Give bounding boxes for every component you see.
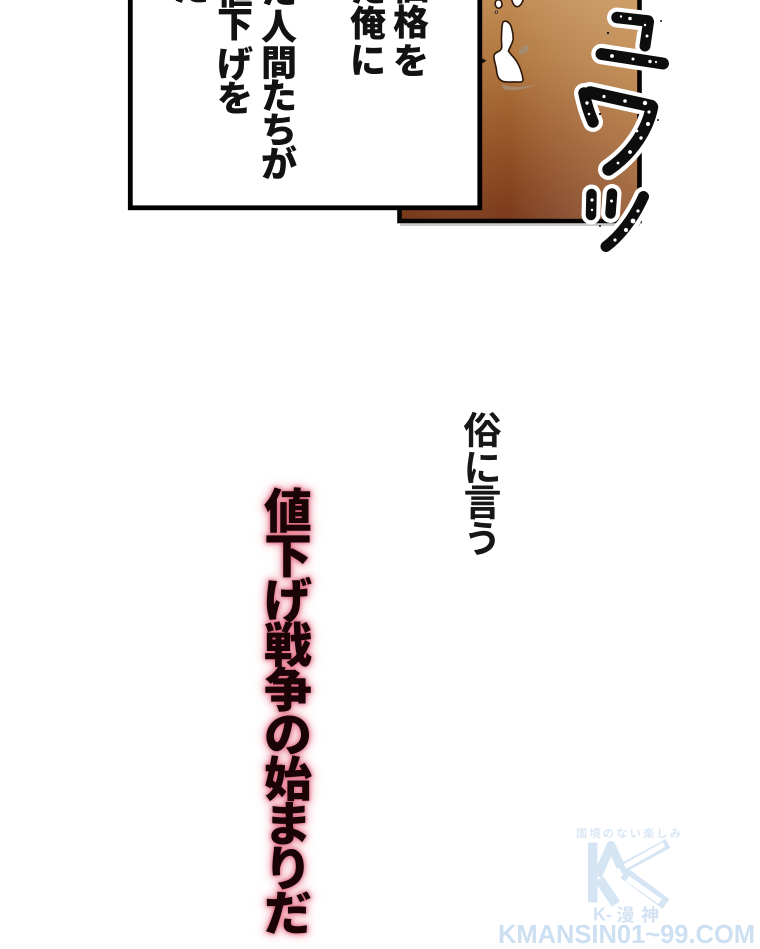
svg-text:KMANSIN01~99.COM: KMANSIN01~99.COM (498, 919, 755, 949)
